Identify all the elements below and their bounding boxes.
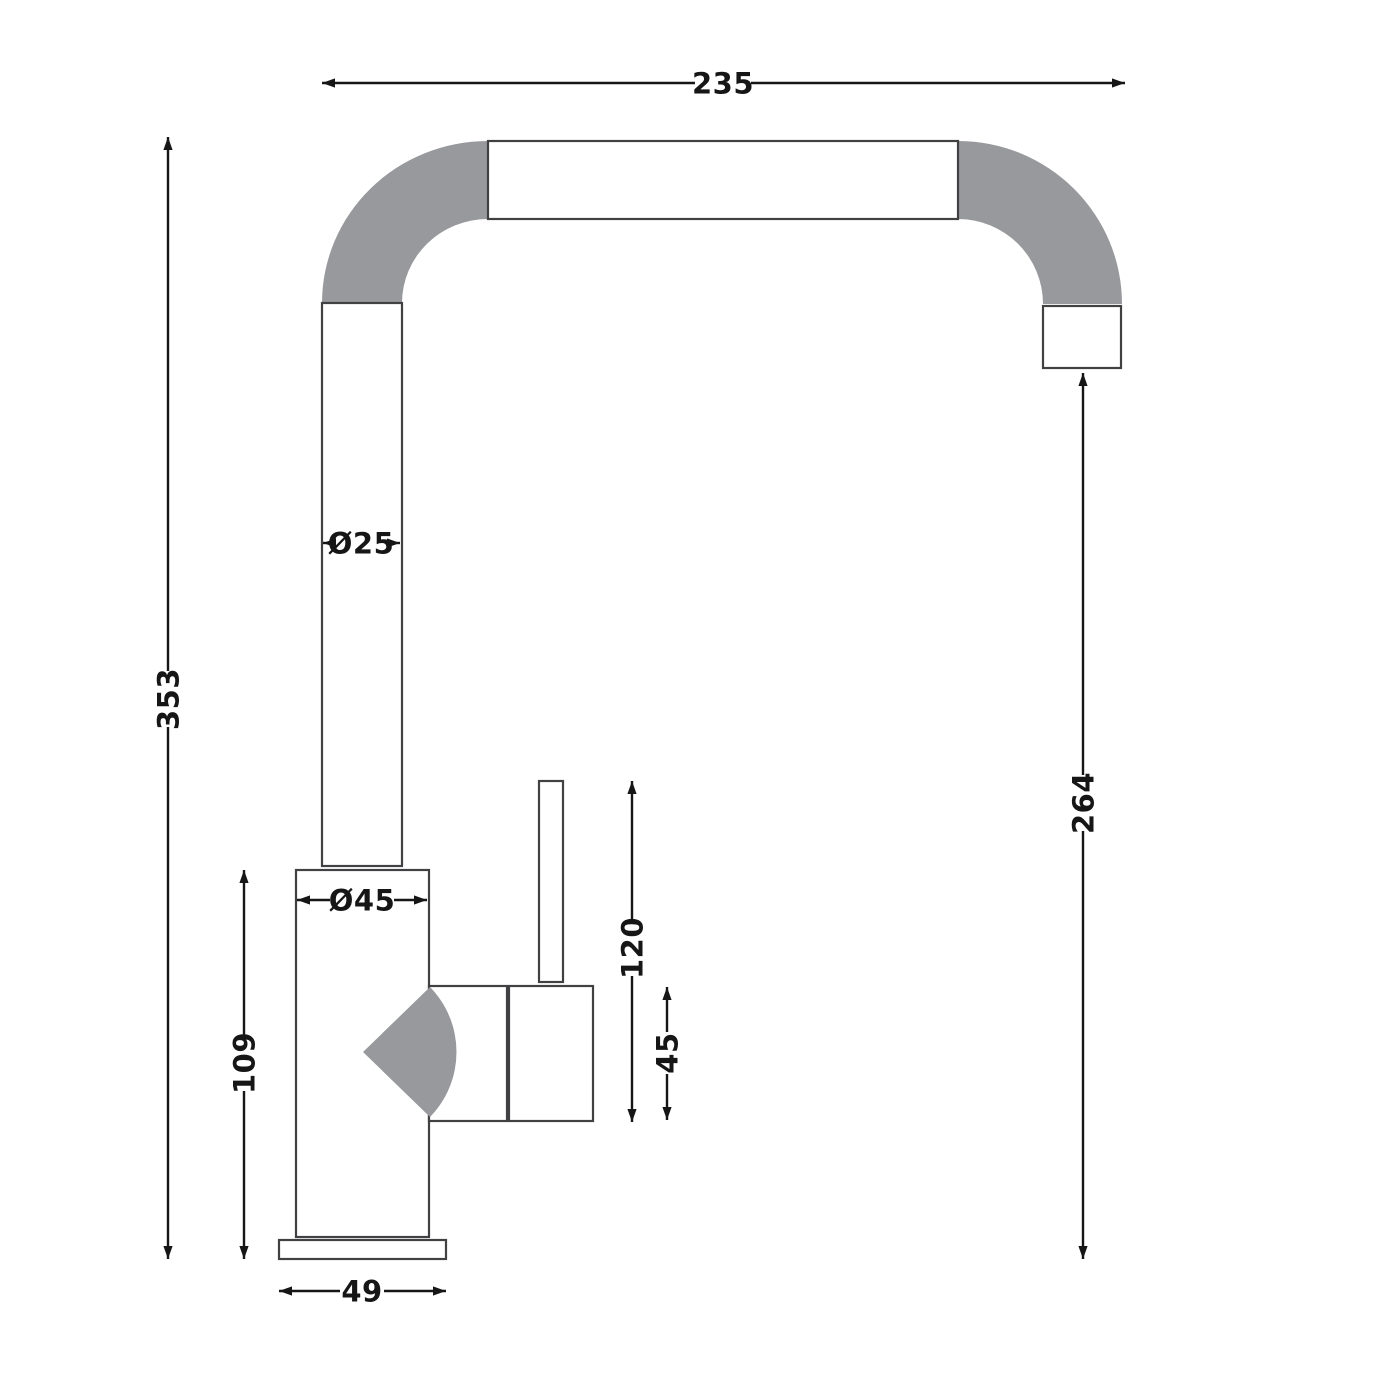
dimension-label-outlet-to-base-height: 264 [1066,772,1100,834]
faucet-drawing-svg: 235 353 Ø25 Ø45 109 [0,0,1400,1400]
spout-left-bend [322,141,488,303]
dimension-label-body-diameter: Ø45 [329,883,396,917]
dimension-overall-height: 353 [151,137,185,1259]
dimension-label-handle-total-height: 120 [615,917,649,979]
handle-lever [539,781,563,982]
faucet-dimension-drawing: 235 353 Ø25 Ø45 109 [0,0,1400,1400]
spout-outlet [1043,306,1121,368]
dimension-label-spout-tube-diameter: Ø25 [328,526,395,560]
spout-top-tube [488,141,958,219]
dimension-handle-total-height: 120 [615,781,649,1122]
dimension-label-body-height: 109 [227,1032,261,1094]
faucet-base-plate [279,1240,446,1259]
dimension-outlet-to-base-height: 264 [1066,373,1100,1259]
dimension-spout-tube-diameter: Ø25 [323,526,400,560]
dimension-handle-body-height: 45 [650,987,684,1120]
spout-riser-tube [322,303,402,866]
dimension-label-overall-height: 353 [151,668,185,730]
handle-body [509,986,593,1121]
dimension-body-height: 109 [227,870,261,1259]
dimension-label-base-width: 49 [341,1274,382,1308]
spout-right-bend [958,141,1122,304]
dimension-overall-width: 235 [322,66,1125,100]
dimension-base-width: 49 [279,1274,446,1308]
faucet-outline-group [279,141,1122,1259]
dimension-label-overall-width: 235 [692,66,754,100]
dimension-label-handle-body-height: 45 [650,1032,684,1073]
